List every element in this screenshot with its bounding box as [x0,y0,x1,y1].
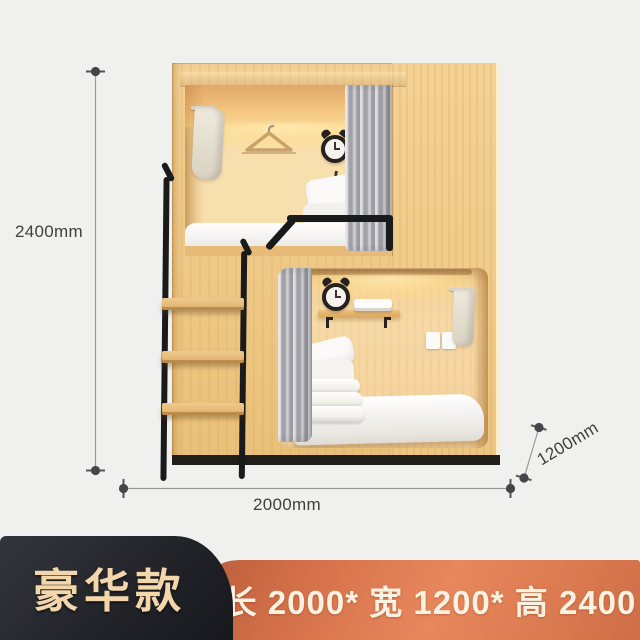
spec-banner-label: 长 2000* 宽 1200* 高 2400 [198,576,637,624]
safety-rail [386,218,393,251]
model-badge-label: 豪华款 [33,555,200,621]
privacy-curtain [278,268,312,442]
model-badge: 豪华款 [0,536,233,640]
ladder-step [162,351,244,363]
spec-banner: 长 2000* 宽 1200* 高 2400 [194,560,640,640]
folded-towel [354,299,392,311]
ladder-step [162,403,244,415]
socket-plate [426,332,440,349]
shelf-bracket [384,317,387,328]
product-image: 2400mm 2000mm 1200mm 长 2000* 宽 1200* 高 2… [0,0,640,640]
cabinet-edge-highlight [496,63,500,465]
hanging-towel [452,290,475,347]
alarm-clock-icon [322,283,350,311]
hanging-towel [191,107,225,180]
shelf-bracket [326,317,329,328]
depth-dimension-label: 1200mm [520,410,616,479]
wall-shelf [318,310,400,317]
ladder-step [162,298,244,310]
safety-rail [287,215,393,222]
bottom-bunk-pod [278,268,488,448]
clothes-hanger-icon [240,123,298,159]
length-dimension-label: 2000mm [227,495,347,515]
ladder-rail [160,177,169,481]
cabinet-base-plinth [172,455,500,465]
height-dimension-label: 2400mm [6,222,92,242]
top-bunk-pod [185,85,392,256]
privacy-curtain [345,85,392,251]
